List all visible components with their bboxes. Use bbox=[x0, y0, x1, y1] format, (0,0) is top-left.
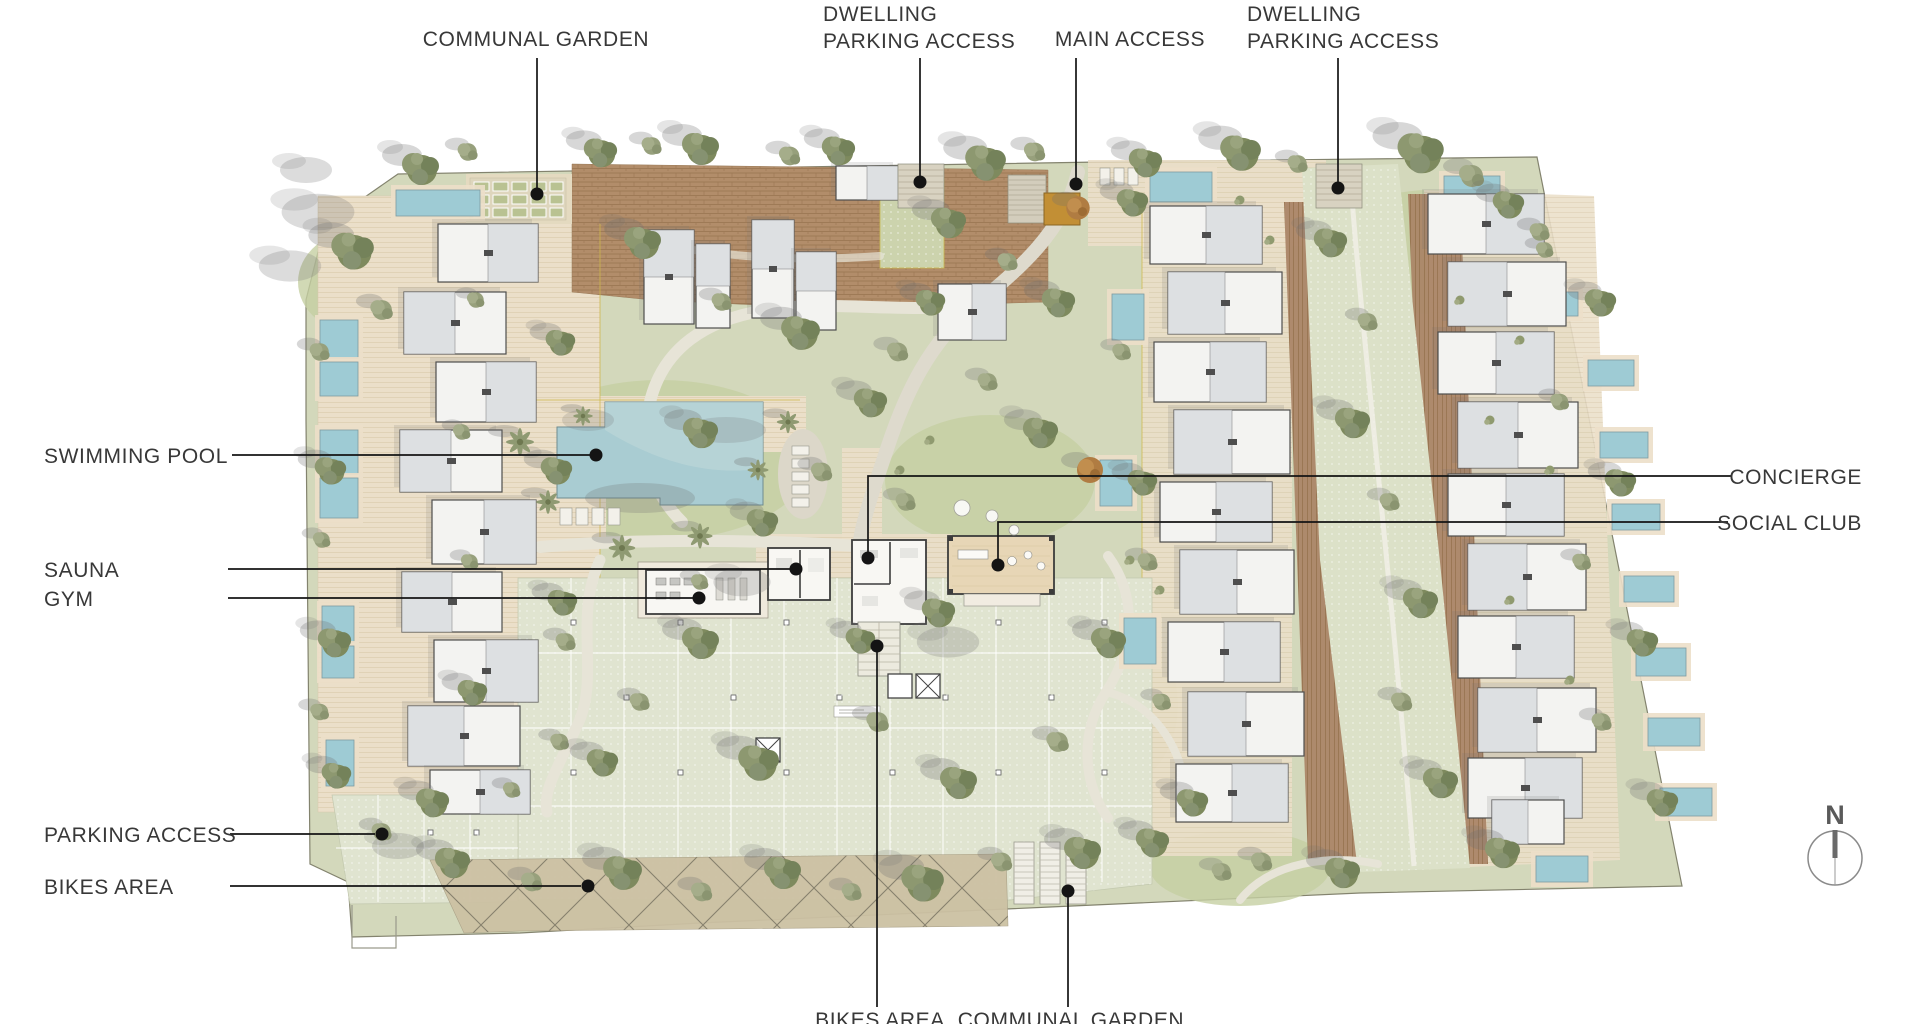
label-dwelling-parking-left-line2: PARKING ACCESS bbox=[823, 28, 1015, 55]
label-main-access: MAIN ACCESS bbox=[1055, 26, 1205, 53]
label-dwelling-parking-left-line1: DWELLING bbox=[823, 1, 1015, 28]
site-plan: N COMMUNAL GARDEN DWELLING PARKING ACCES… bbox=[0, 0, 1920, 1024]
concierge-building bbox=[852, 540, 926, 624]
label-communal-garden-bottom: COMMUNAL GARDEN bbox=[958, 1007, 1184, 1024]
label-social-club: SOCIAL CLUB bbox=[1717, 510, 1862, 537]
site-plan-rendering: N bbox=[0, 0, 1920, 1024]
label-gym: GYM bbox=[44, 586, 94, 613]
label-dwelling-parking-right-line1: DWELLING bbox=[1247, 1, 1439, 28]
label-dwelling-parking-left: DWELLING PARKING ACCESS bbox=[823, 1, 1015, 55]
label-communal-garden-top: COMMUNAL GARDEN bbox=[423, 26, 649, 53]
label-swimming-pool: SWIMMING POOL bbox=[44, 443, 228, 470]
label-sauna: SAUNA bbox=[44, 557, 119, 584]
label-parking-access: PARKING ACCESS bbox=[44, 822, 236, 849]
label-dwelling-parking-right: DWELLING PARKING ACCESS bbox=[1247, 1, 1439, 55]
north-compass-icon: N bbox=[1808, 800, 1862, 885]
social-club-building bbox=[948, 536, 1054, 606]
label-concierge: CONCIERGE bbox=[1729, 464, 1862, 491]
compass-north-label: N bbox=[1825, 800, 1845, 830]
label-dwelling-parking-right-line2: PARKING ACCESS bbox=[1247, 28, 1439, 55]
label-bikes-area: BIKES AREA bbox=[44, 874, 174, 901]
label-bikes-area-bottom: BIKES AREA bbox=[815, 1007, 945, 1024]
